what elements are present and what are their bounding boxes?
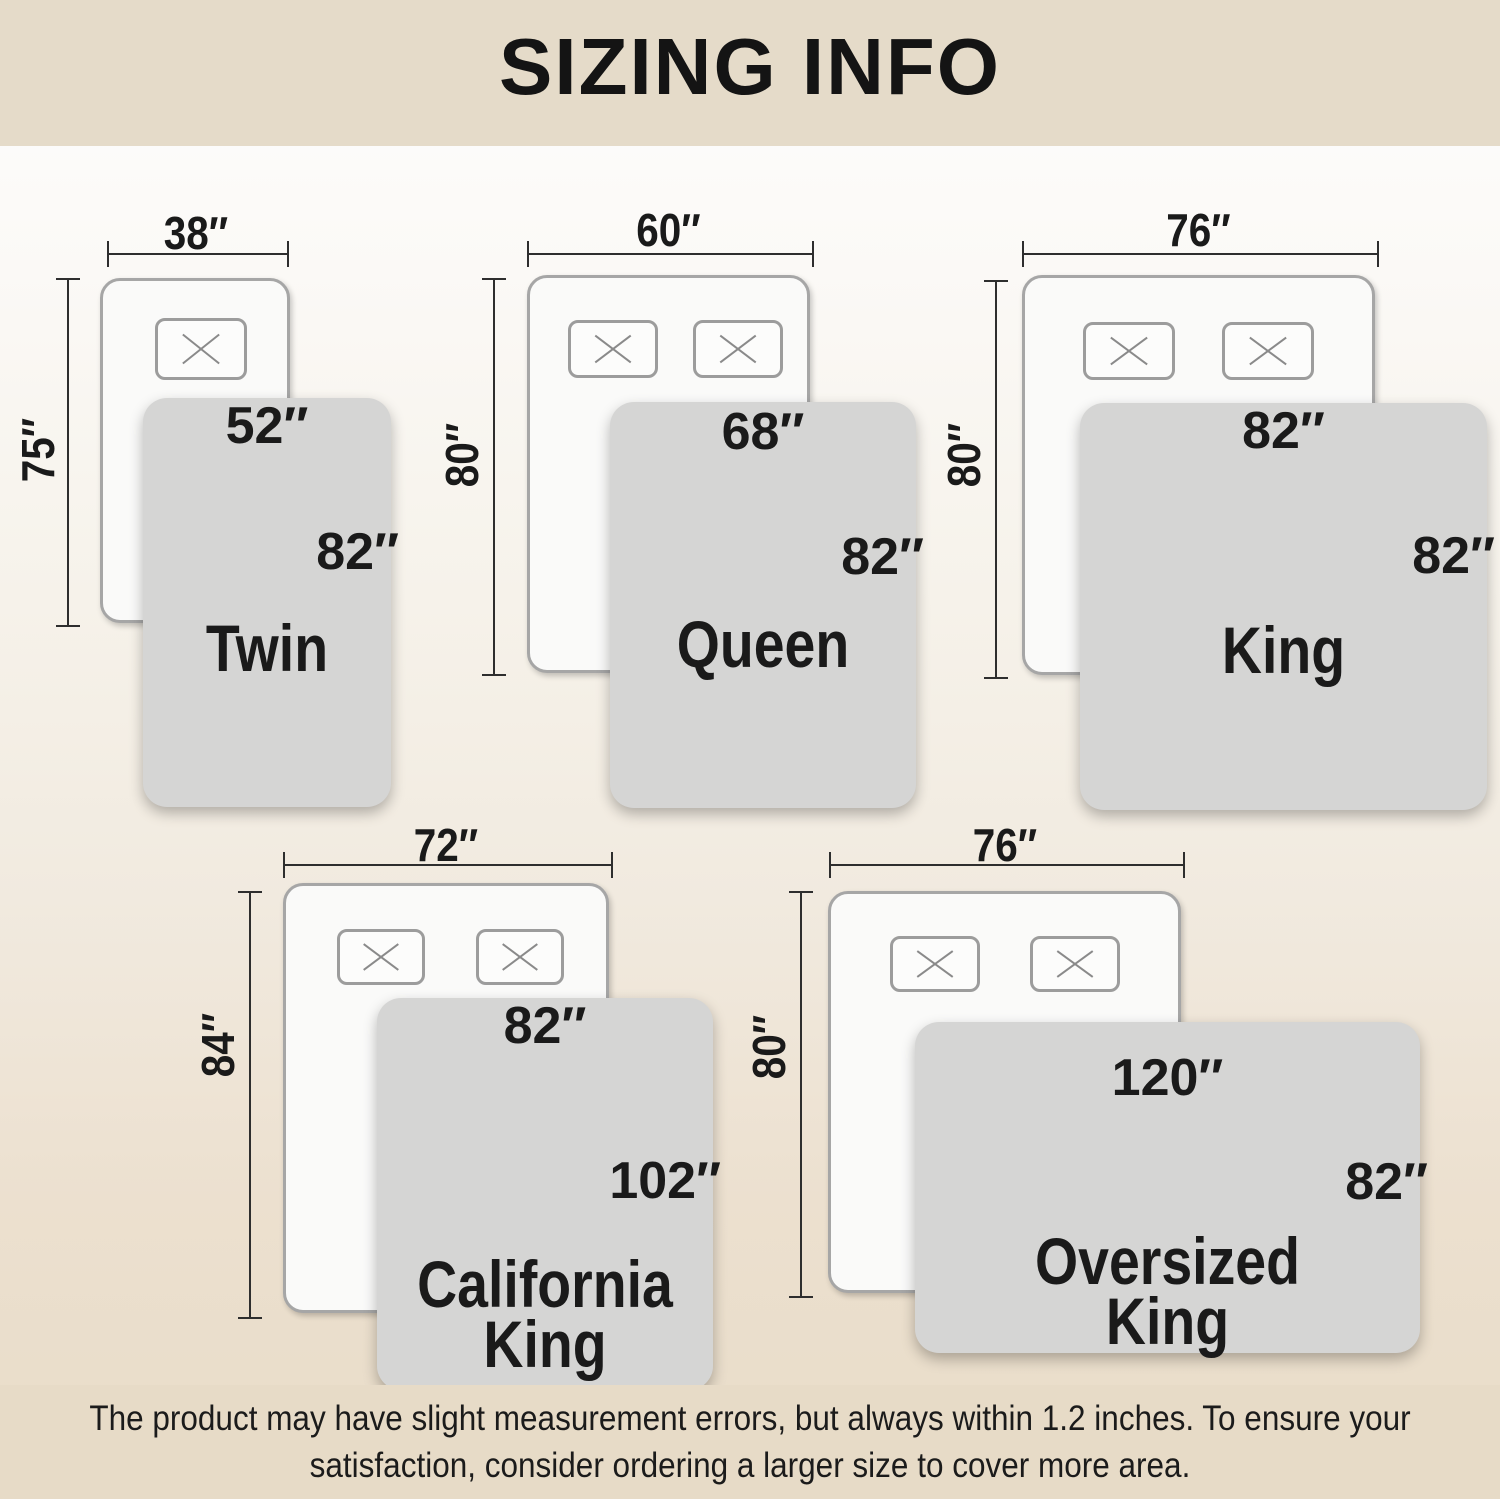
page-title: SIZING INFO [0, 0, 1500, 134]
pillow [1030, 936, 1120, 992]
blanket-length-label: 82″ [610, 531, 924, 583]
pillow-x-icon [1033, 939, 1117, 989]
length-dimension-line [238, 891, 262, 1319]
pillow [1083, 322, 1175, 380]
length-dimension-line [984, 280, 1008, 679]
pillow-x-icon [340, 932, 422, 982]
pillow-x-icon [893, 939, 977, 989]
pillow-x-icon [479, 932, 561, 982]
blanket-length-label: 102″ [377, 1155, 721, 1207]
mattress-length-label: 80″ [939, 393, 989, 516]
sizing-infographic: SIZING INFO 38″ 75″ 52″ 82″ Twin 60″ 80″… [0, 0, 1500, 1499]
pillow-x-icon [1086, 325, 1172, 377]
size-name: Queen [634, 614, 891, 674]
size-name: California King [404, 1254, 686, 1374]
width-dimension-line [1022, 241, 1379, 267]
width-dimension-line [527, 241, 814, 267]
header-banner: SIZING INFO [0, 0, 1500, 146]
footer-banner: The product may have slight measurement … [0, 1385, 1500, 1499]
pillow [890, 936, 980, 992]
pillow [693, 320, 783, 378]
blanket-length-label: 82″ [143, 526, 399, 578]
pillow [476, 929, 564, 985]
pillow-x-icon [571, 323, 655, 375]
mattress-length-label: 84″ [193, 983, 243, 1106]
pillow-x-icon [696, 323, 780, 375]
length-dimension-line [56, 278, 80, 627]
pillow-x-icon [1225, 325, 1311, 377]
pillow [155, 318, 247, 380]
disclaimer-text: The product may have slight measurement … [3, 1395, 1497, 1489]
length-dimension-line [482, 278, 506, 676]
mattress-length-label: 80″ [744, 985, 794, 1108]
mattress-length-label: 80″ [437, 393, 487, 516]
blanket-width-label: 82″ [377, 1000, 713, 1052]
blanket-length-label: 82″ [1080, 530, 1495, 582]
width-dimension-line [107, 241, 289, 267]
length-dimension-line [789, 891, 813, 1298]
pillow [1222, 322, 1314, 380]
pillow [568, 320, 658, 378]
blanket [143, 398, 391, 807]
blanket-width-label: 68″ [610, 406, 916, 458]
blanket-width-label: 120″ [915, 1052, 1420, 1104]
size-name: King [1113, 620, 1455, 680]
pillow-x-icon [158, 321, 244, 377]
width-dimension-line [829, 852, 1185, 878]
blanket [1080, 403, 1487, 810]
size-name: Oversized King [955, 1231, 1379, 1351]
blanket-length-label: 82″ [915, 1156, 1428, 1208]
blanket-width-label: 82″ [1080, 405, 1487, 457]
blanket-width-label: 52″ [143, 400, 391, 452]
size-name: Twin [163, 618, 371, 678]
pillow [337, 929, 425, 985]
blanket [610, 402, 916, 808]
width-dimension-line [283, 852, 613, 878]
